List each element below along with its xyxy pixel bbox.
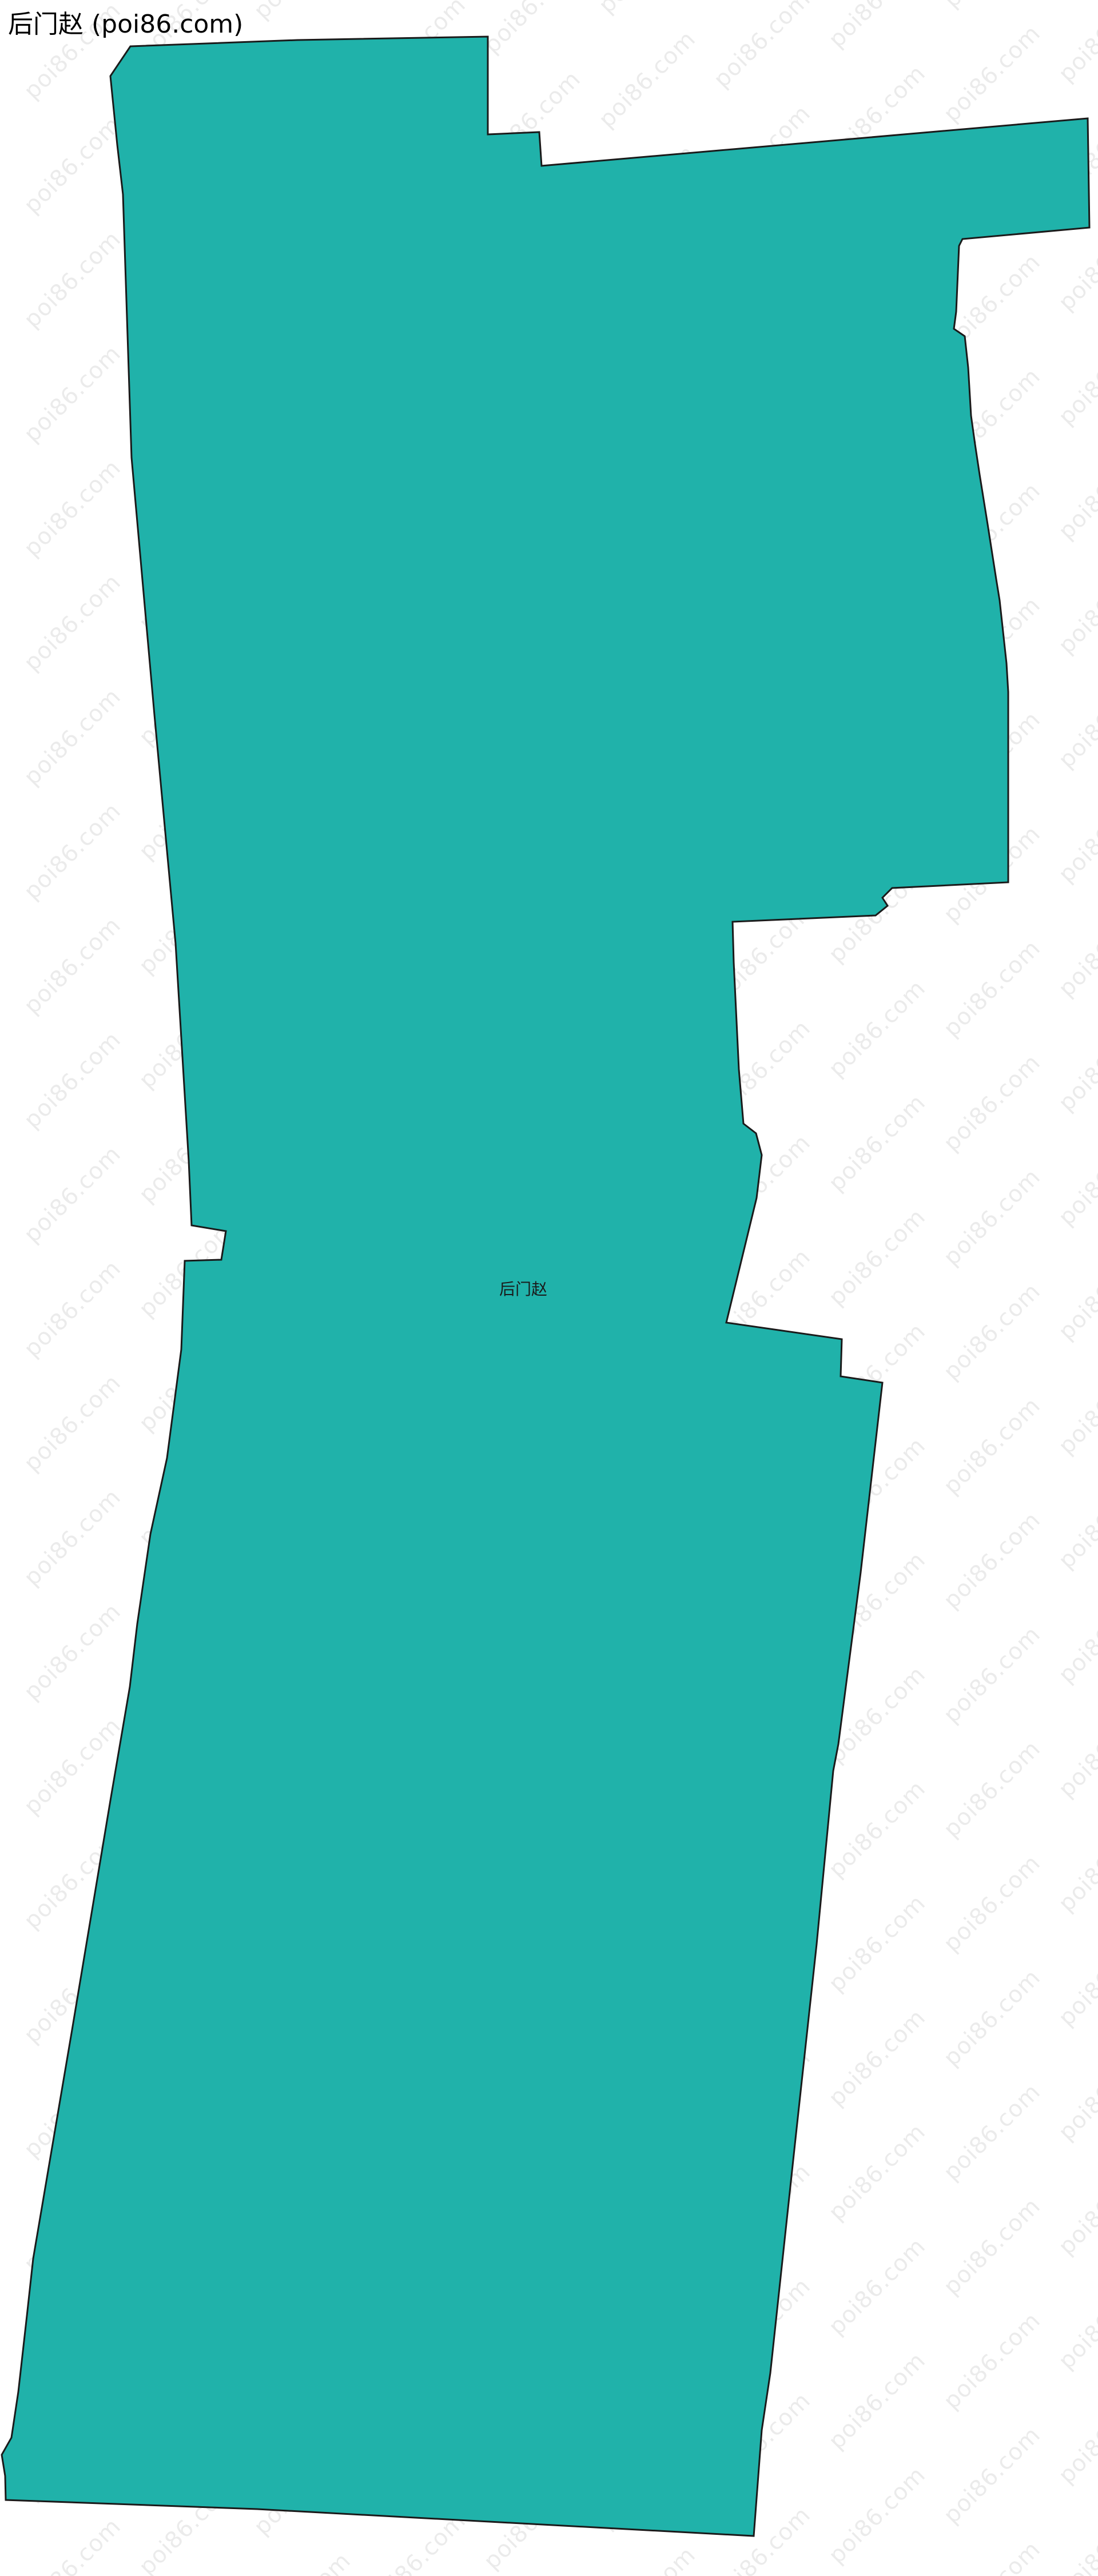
map-canvas: poi86.compoi86.compoi86.compoi86.compoi8… <box>0 0 1098 2576</box>
map-svg <box>0 0 1098 2576</box>
page-title: 后门赵 (poi86.com) <box>8 3 243 40</box>
region-label: 后门赵 <box>499 1277 547 1300</box>
